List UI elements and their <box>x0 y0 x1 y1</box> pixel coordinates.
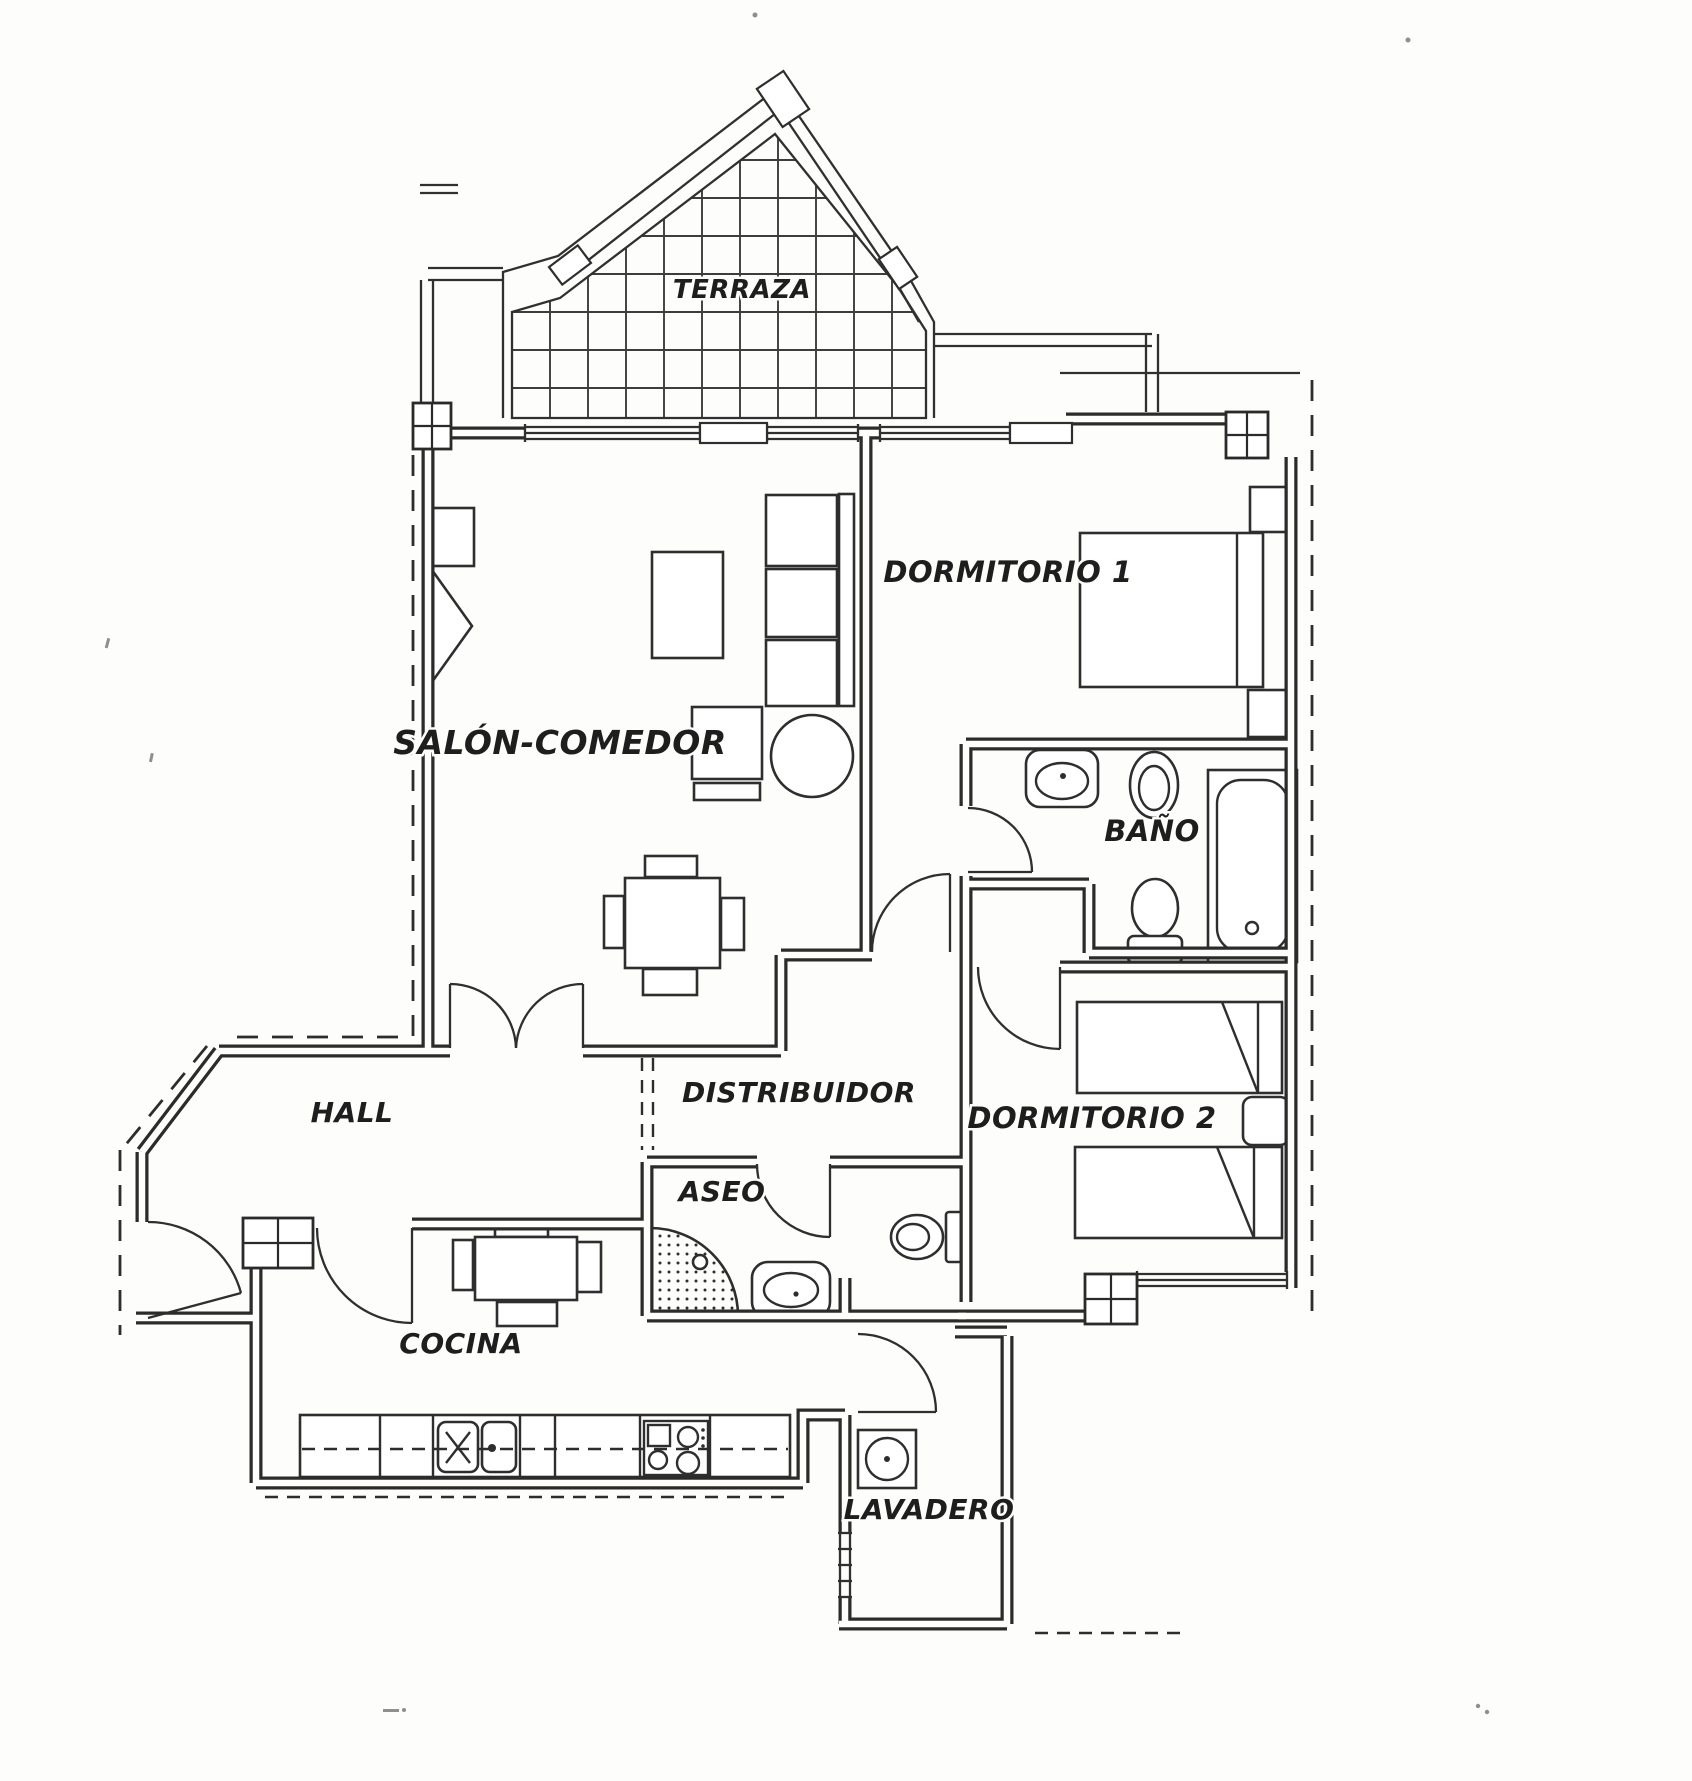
scanned-floor-plan-page: TERRAZA DORMITORIO 1 SALÓN-COMEDOR BAÑO … <box>0 0 1692 1781</box>
room-label-bano: BAÑO <box>1104 814 1199 848</box>
door-cocina <box>317 1228 412 1323</box>
hall-distribuidor-divider <box>642 1058 653 1150</box>
bidet-icon <box>1130 752 1178 818</box>
kitchen-table-icon <box>453 1222 601 1326</box>
column-hall <box>243 1218 313 1268</box>
bathtub-icon <box>1208 770 1297 962</box>
door-dormitorio-2 <box>978 967 1060 1049</box>
room-labels: TERRAZA DORMITORIO 1 SALÓN-COMEDOR BAÑO … <box>311 275 1217 1526</box>
room-label-terraza: TERRAZA <box>673 275 811 305</box>
facade-pier <box>700 423 767 443</box>
room-label-dormitorio-2: DORMITORIO 2 <box>967 1101 1216 1135</box>
room-label-cocina: COCINA <box>399 1327 522 1360</box>
aseo-toilet-icon <box>891 1212 962 1262</box>
bathroom-sink-icon <box>1026 750 1098 807</box>
room-label-aseo: ASEO <box>677 1175 766 1208</box>
dining-table-icon <box>604 856 744 995</box>
column-dormitorio-2 <box>1085 1274 1137 1324</box>
door-double-salon <box>450 984 583 1048</box>
door-entrance <box>148 1222 241 1318</box>
room-label-hall: HALL <box>311 1096 394 1129</box>
window-dormitorio-2 <box>1137 1271 1287 1289</box>
door-corridor <box>872 874 950 952</box>
door-lavadero <box>858 1334 936 1412</box>
room-label-lavadero: LAVADERO <box>844 1493 1015 1526</box>
door-aseo <box>757 1164 830 1237</box>
door-bano <box>968 808 1032 872</box>
nightstand-icon <box>1243 1097 1289 1145</box>
floor-plan-drawing: TERRAZA DORMITORIO 1 SALÓN-COMEDOR BAÑO … <box>0 0 1692 1781</box>
tv-cabinet-icon <box>430 508 474 682</box>
room-label-distribuidor: DISTRIBUIDOR <box>682 1076 916 1109</box>
room-label-salon-comedor: SALÓN-COMEDOR <box>393 722 727 762</box>
shower-tray-icon <box>650 1228 738 1316</box>
kitchen-sink-icon <box>438 1422 516 1472</box>
coffee-table-icon <box>652 552 723 658</box>
double-bed-icon <box>1080 487 1294 737</box>
facade-pier <box>1010 423 1072 443</box>
window-salon-1 <box>525 424 700 442</box>
column-top-left <box>413 403 451 449</box>
sofa-icon <box>766 494 854 706</box>
window-dormitorio-1 <box>880 424 1010 442</box>
kitchen-counter <box>300 1415 790 1477</box>
window-lavadero <box>838 1533 852 1597</box>
terraza-roof <box>420 71 1300 420</box>
room-label-dormitorio-1: DORMITORIO 1 <box>883 555 1132 589</box>
round-table-icon <box>771 715 853 797</box>
window-salon-2 <box>767 424 858 442</box>
washing-machine-icon <box>858 1430 916 1488</box>
column-top-right <box>1226 412 1268 458</box>
